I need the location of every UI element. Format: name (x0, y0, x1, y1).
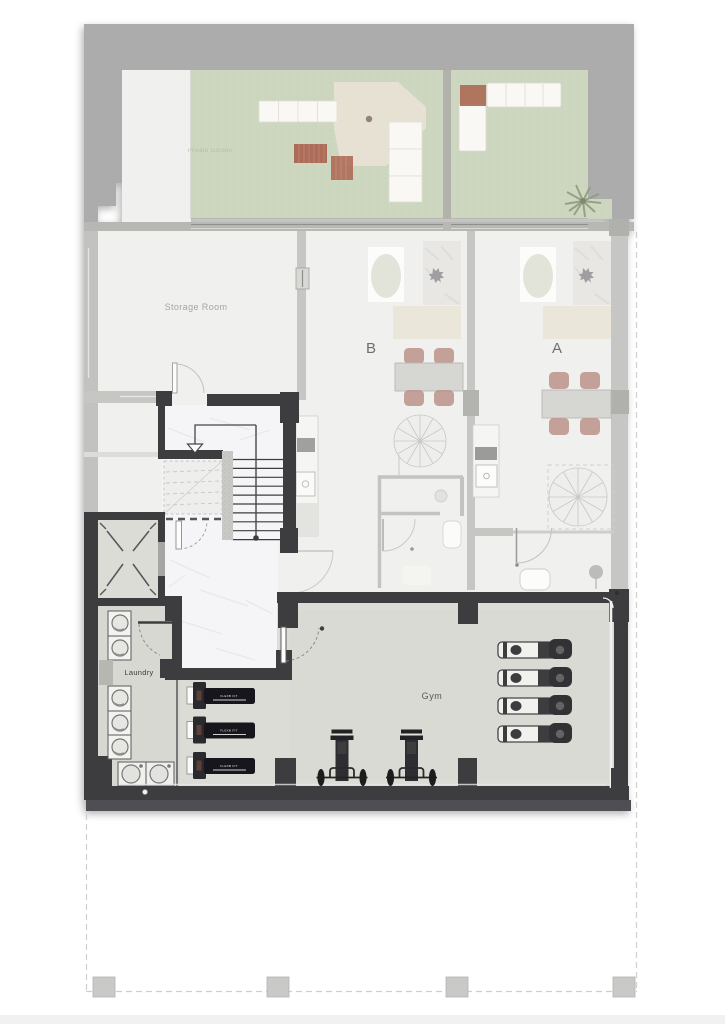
svg-text:FLEXB FIT: FLEXB FIT (220, 764, 238, 768)
svg-text:Laundry: Laundry (124, 668, 153, 677)
svg-text:FLEXB FIT: FLEXB FIT (220, 694, 238, 698)
svg-text:Private Garden: Private Garden (188, 148, 233, 154)
svg-text:Gym: Gym (422, 691, 443, 701)
svg-text:A: A (552, 340, 562, 357)
svg-text:FLEXB FIT: FLEXB FIT (220, 729, 238, 733)
svg-text:Storage Room: Storage Room (165, 302, 228, 312)
svg-text:B: B (366, 340, 376, 357)
